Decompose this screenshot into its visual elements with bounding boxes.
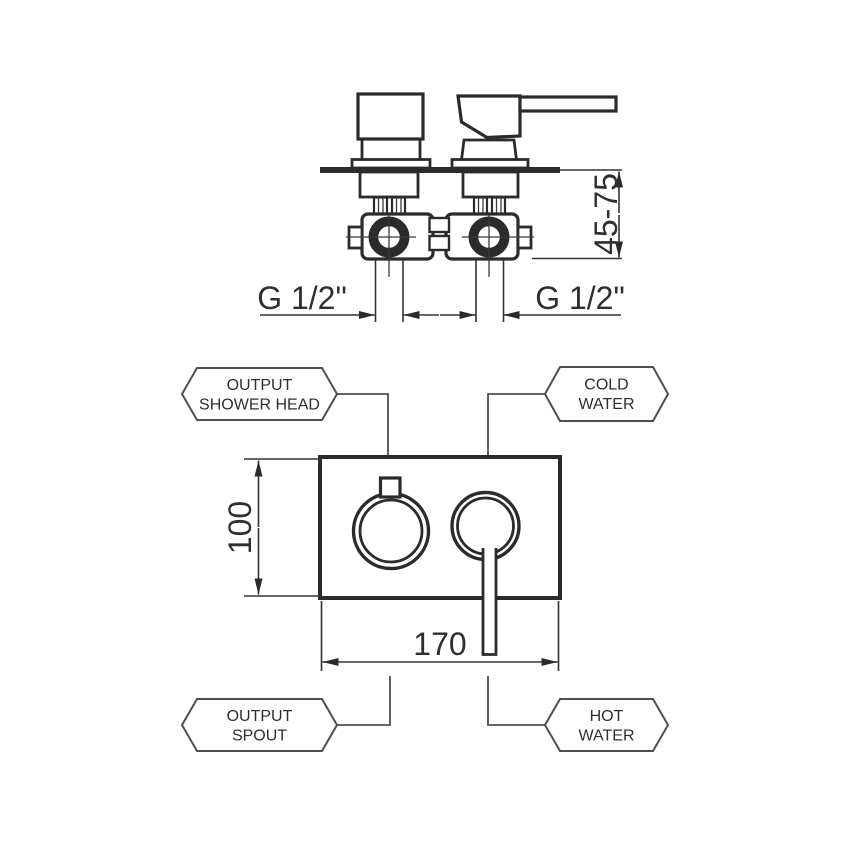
dimension-thread-right: G 1/2" bbox=[440, 259, 625, 322]
diverter-knob bbox=[358, 94, 423, 139]
leader-cold-water bbox=[488, 394, 545, 455]
thread-size-left-label: G 1/2" bbox=[257, 280, 347, 316]
callout-text-line1: OUTPUT bbox=[227, 708, 293, 725]
leader-output-spout bbox=[337, 676, 390, 725]
front-view: 100 170 OUTPUT SHOWER HEAD COLD WATER OU… bbox=[182, 367, 668, 751]
dimension-thread-left: G 1/2" bbox=[257, 259, 439, 322]
callout-text-line2: WATER bbox=[579, 728, 635, 745]
plate-height-label: 100 bbox=[222, 501, 258, 554]
diverter-flange bbox=[352, 160, 430, 169]
leader-hot-water bbox=[488, 676, 545, 725]
callout-text-line2: SPOUT bbox=[232, 728, 287, 745]
mixer-valve-technical-drawing: G 1/2" G 1/2" 45-75 bbox=[0, 0, 850, 850]
callout-text-line1: HOT bbox=[590, 708, 624, 725]
side-installation-view: G 1/2" G 1/2" 45-75 bbox=[257, 94, 625, 322]
callout-output-spout: OUTPUT SPOUT bbox=[182, 699, 337, 751]
wall-surface-line bbox=[320, 167, 560, 173]
connector-fittings bbox=[374, 198, 505, 215]
callout-cold-water: COLD WATER bbox=[545, 367, 668, 421]
leader-output-shower-head bbox=[337, 394, 388, 455]
diverter-control-side bbox=[352, 94, 430, 197]
dimension-plate-height: 100 bbox=[222, 459, 322, 596]
dimension-plate-width: 170 bbox=[322, 601, 559, 671]
diverter-neck bbox=[362, 139, 420, 160]
drawing-svg: G 1/2" G 1/2" 45-75 bbox=[0, 0, 850, 850]
lever-body-inwall bbox=[463, 172, 518, 197]
callout-hot-water: HOT WATER bbox=[545, 699, 668, 751]
lever-flange bbox=[452, 160, 528, 169]
lever-bar bbox=[520, 97, 616, 111]
dimension-depth: 45-75 bbox=[532, 170, 624, 259]
depth-range-label: 45-75 bbox=[588, 173, 624, 255]
mixer-lever-front bbox=[483, 548, 496, 655]
manifold-body bbox=[346, 214, 534, 277]
lever-neck bbox=[462, 140, 517, 160]
diverter-body-inwall bbox=[360, 172, 418, 197]
callout-text-line1: COLD bbox=[584, 377, 628, 394]
manifold-bridge-bottom bbox=[430, 236, 450, 250]
thread-size-right-label: G 1/2" bbox=[535, 280, 625, 316]
manifold-bridge-top bbox=[430, 218, 450, 232]
callout-text-line2: WATER bbox=[579, 396, 635, 413]
lever-hub bbox=[458, 96, 520, 138]
callout-text-line2: SHOWER HEAD bbox=[199, 397, 320, 414]
diverter-tab bbox=[381, 478, 401, 497]
plate-width-label: 170 bbox=[413, 626, 466, 662]
callout-output-shower-head: OUTPUT SHOWER HEAD bbox=[182, 368, 337, 420]
callout-text-line1: OUTPUT bbox=[227, 377, 293, 394]
